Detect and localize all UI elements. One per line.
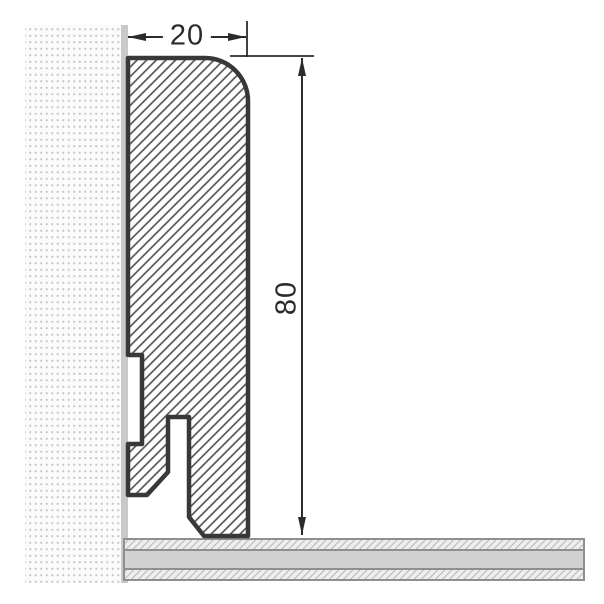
width-dim-arrow-right [228, 33, 246, 41]
skirting-profile [128, 58, 248, 536]
floor-section [124, 539, 584, 580]
height-dimension-label: 80 [273, 281, 302, 315]
width-dimension-label: 20 [163, 20, 211, 53]
height-dim-arrow-top [298, 58, 306, 76]
floor-bottom-layer [124, 569, 584, 580]
floor-middle-layer [124, 550, 584, 569]
width-dim-arrow-left [128, 33, 146, 41]
height-dim-arrow-bottom [298, 517, 306, 535]
floor-top-layer [124, 539, 584, 550]
technical-drawing-canvas: 20 80 [0, 0, 604, 604]
wall-section [25, 25, 121, 583]
